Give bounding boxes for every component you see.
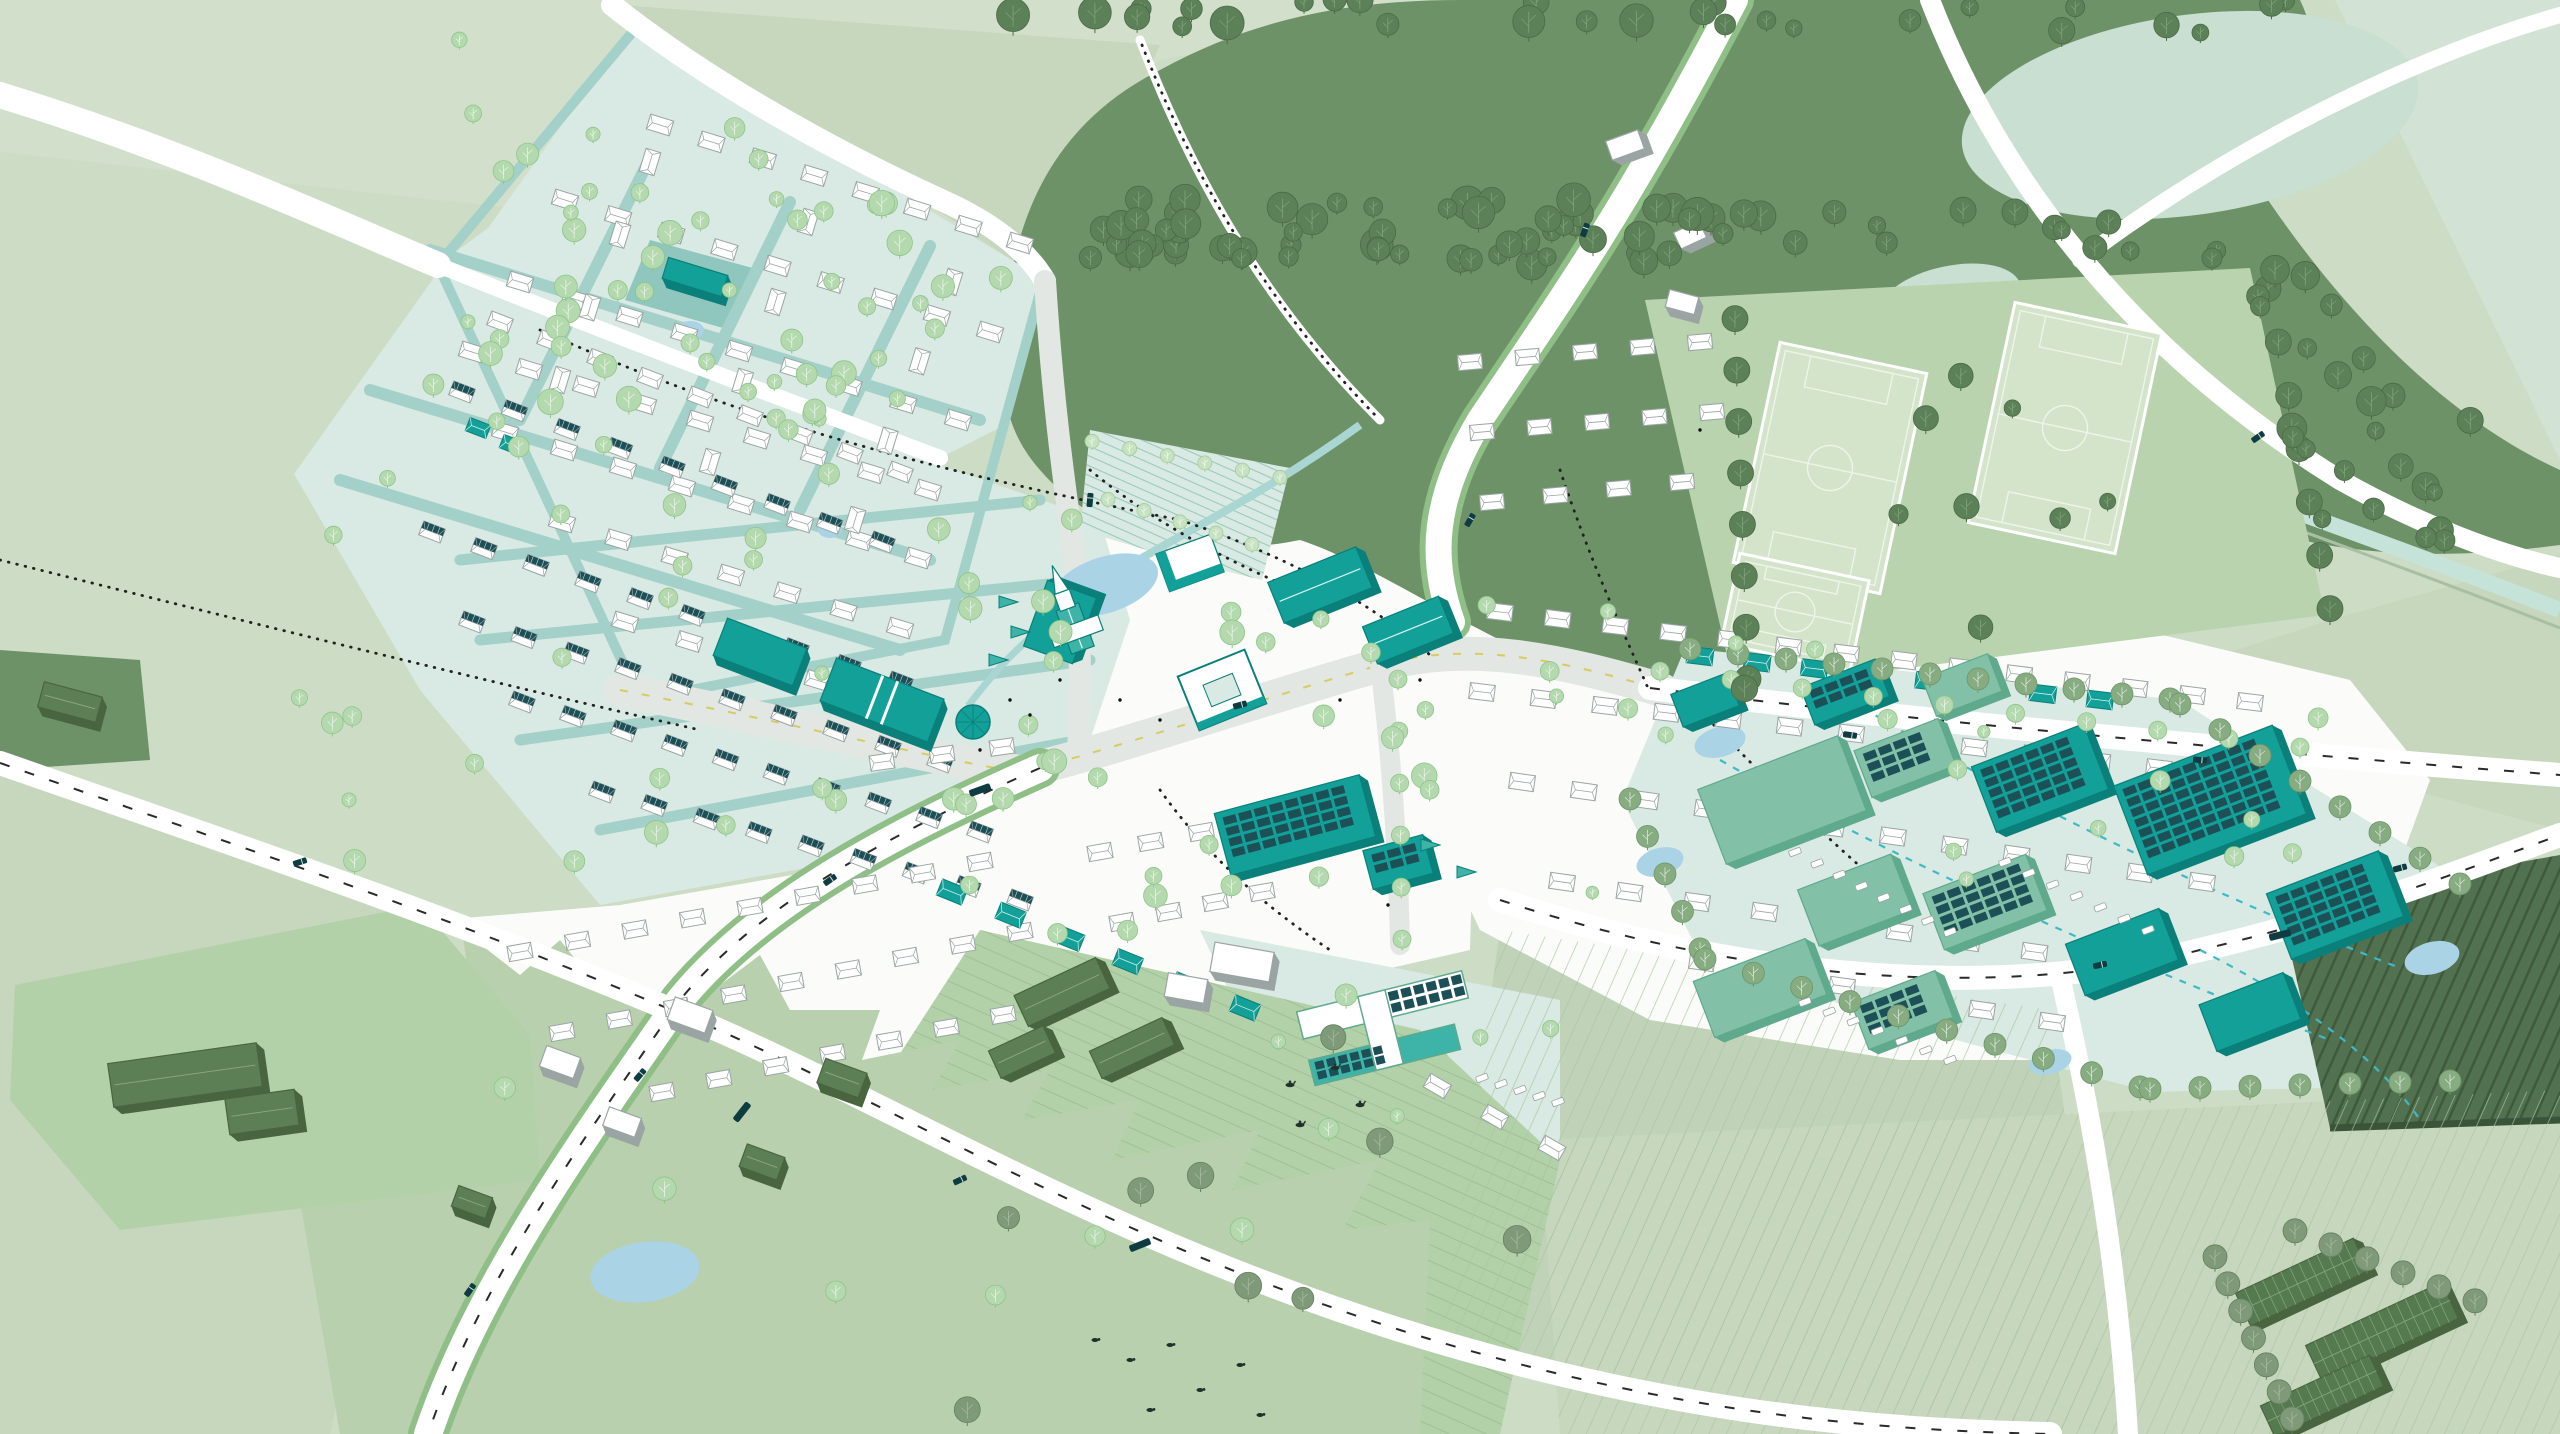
cow-head [1243,1363,1246,1366]
masterplan-illustration [0,0,2560,1434]
car-icon [1086,493,1093,507]
house-icon [1616,882,1643,901]
house-icon [1527,418,1552,435]
house-icon [1457,353,1482,370]
house-icon [1602,616,1629,635]
house-icon [869,753,895,772]
cow-head [1263,1413,1266,1416]
cow-head [1133,1358,1136,1361]
house-icon [2189,872,2216,891]
house-icon [1584,413,1609,430]
house-icon [2039,1012,2066,1031]
house-icon [1699,403,1724,420]
house-icon [1879,827,1906,846]
house-icon [1469,423,1494,440]
cow-head [1098,1338,1101,1341]
cow-head [1153,1408,1156,1411]
house-icon [1961,738,1988,757]
house-icon [1469,683,1496,702]
house-icon [2065,854,2092,873]
house-icon [1570,781,1597,800]
cow-body [1237,1363,1244,1367]
house-icon [2237,693,2264,712]
windshield [1087,498,1093,499]
cow-body [1167,1343,1174,1347]
house-icon [1687,333,1712,350]
house-icon [2021,942,2048,961]
map-layers [0,0,2560,1434]
map-canvas [0,0,2560,1434]
house-icon [1543,487,1568,504]
house-icon [1751,902,1778,921]
house-icon [1509,772,1536,791]
windshield [2202,757,2203,763]
house-icon [1890,651,1917,670]
house-icon [1479,493,1504,510]
house-icon [1969,1000,1996,1019]
cow-head [1203,1388,1206,1391]
cow-body [1147,1408,1154,1412]
house-icon [1642,408,1667,425]
house-icon [1660,623,1687,642]
house-icon [1592,696,1619,715]
house-icon [1776,717,1803,736]
house-icon [1669,473,1694,490]
house-icon [1549,872,1576,891]
house-icon [1544,609,1571,628]
car-body [1086,493,1093,507]
car-icon [2193,756,2207,763]
cow-body [1127,1358,1134,1362]
house-icon [1606,480,1631,497]
teal-house-icon [2086,690,2114,710]
cow-body [1092,1338,1099,1342]
house-icon [1572,343,1597,360]
round-pavilion-icon [956,705,990,739]
cow-head [1173,1343,1176,1346]
house-icon [929,745,955,764]
cow-body [1197,1388,1204,1392]
car-body [2193,756,2207,763]
house-icon [1630,338,1655,355]
house-icon [1515,348,1540,365]
house-icon [989,738,1015,757]
cow-body [1257,1413,1264,1417]
